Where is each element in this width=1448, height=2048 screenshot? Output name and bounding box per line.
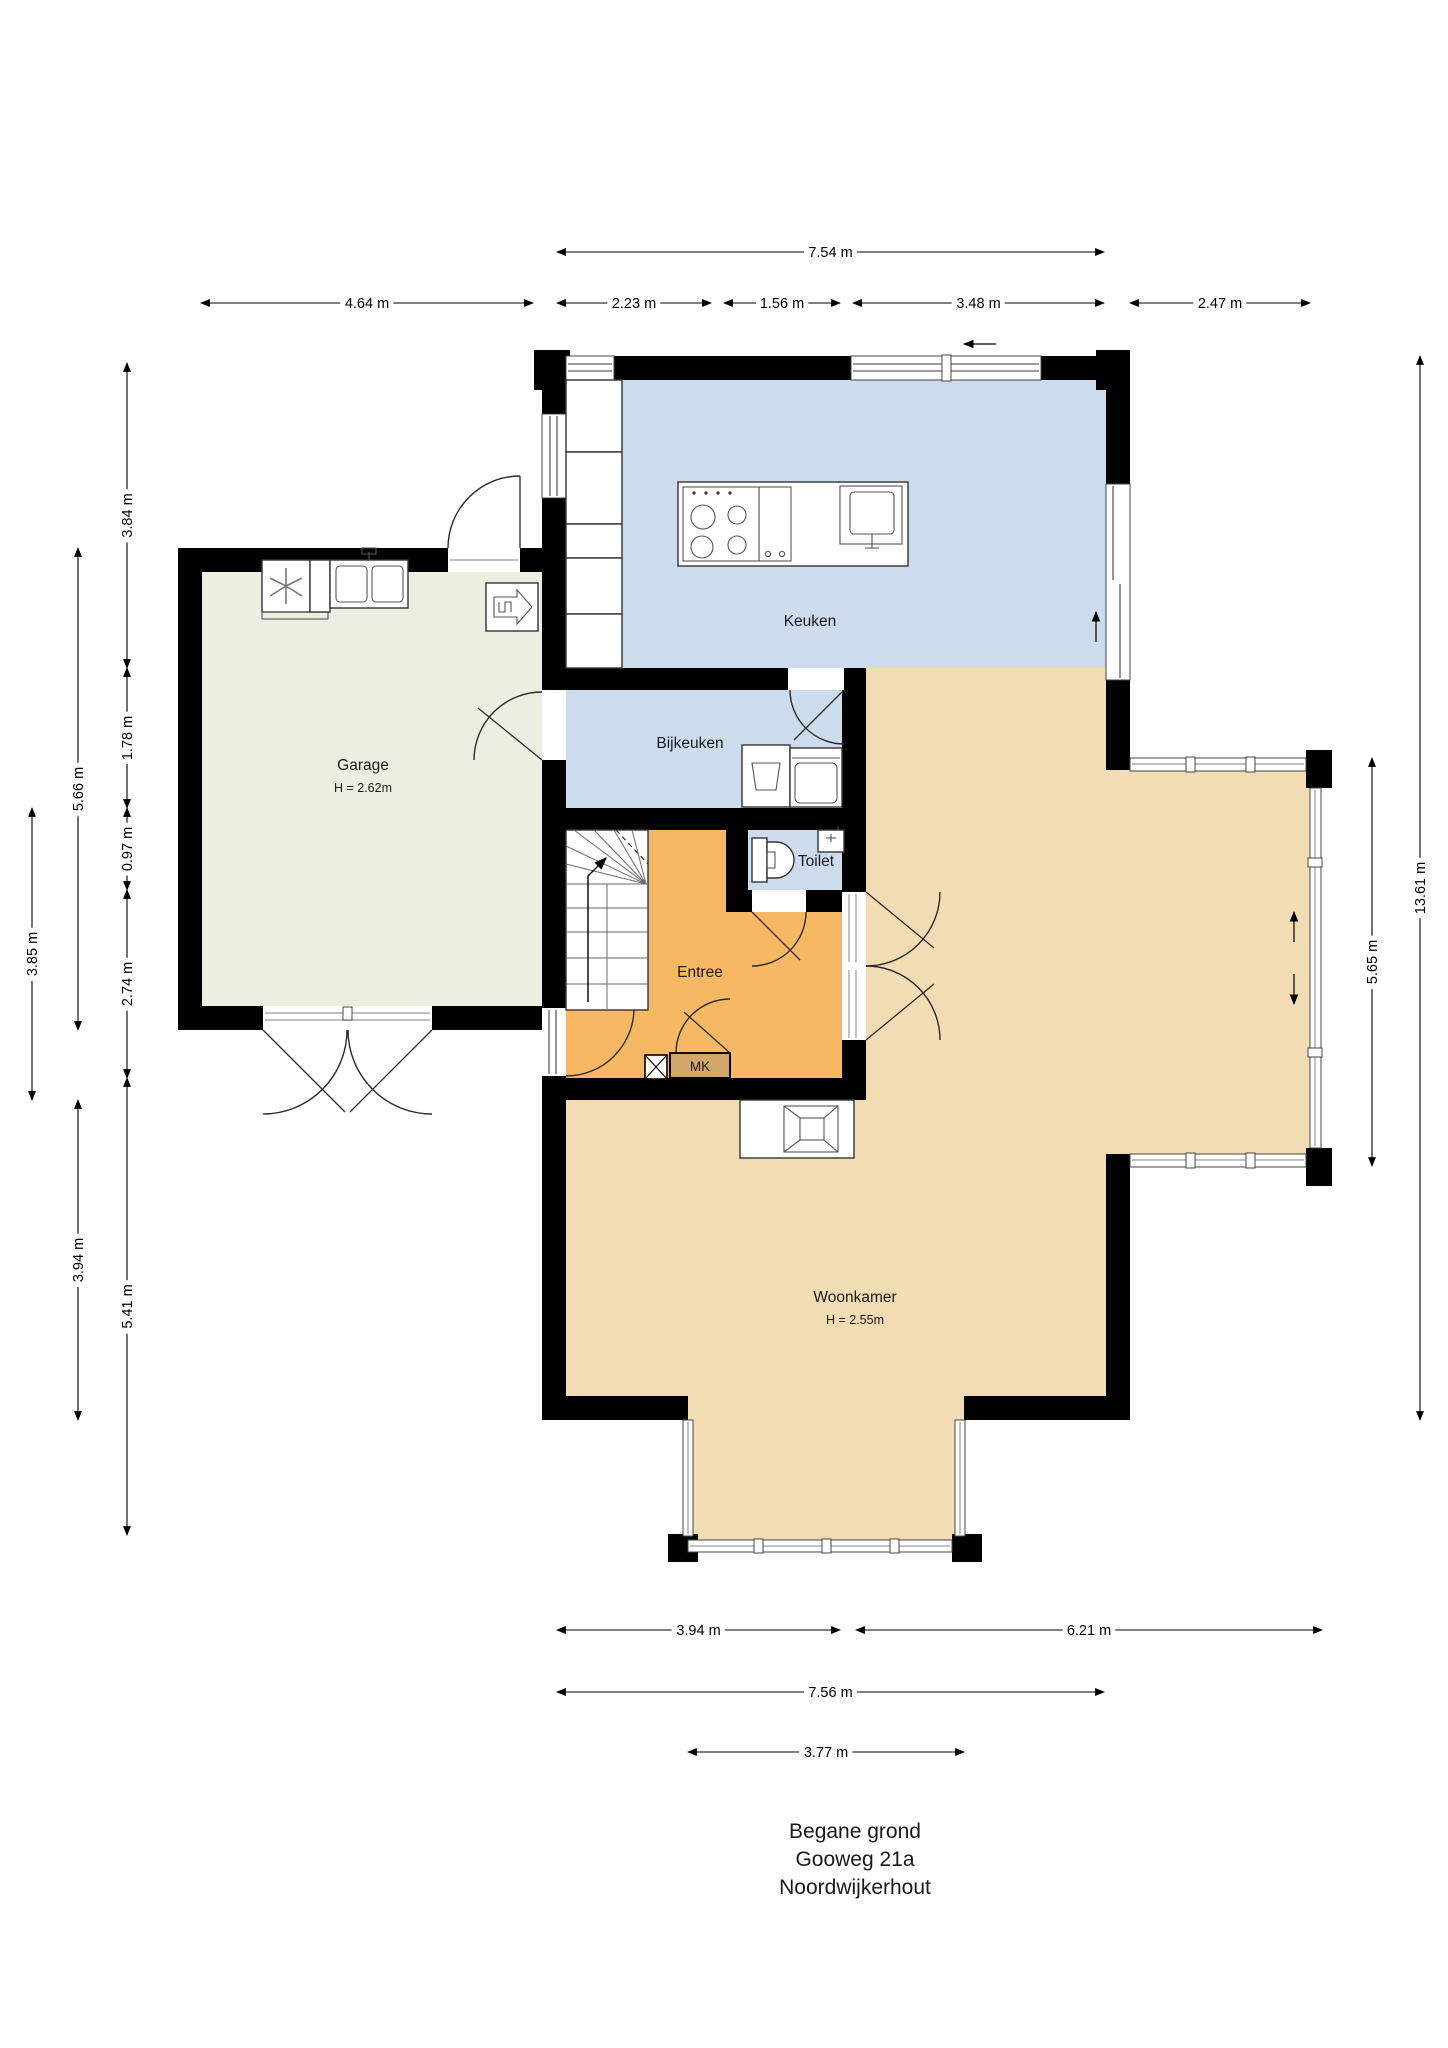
woonkamer-double-door-gap <box>842 892 866 1040</box>
utility-sink <box>742 745 790 807</box>
toilet-sink-icon <box>818 826 844 852</box>
keuken-top-window-large <box>851 355 1041 381</box>
toilet-door-gap <box>752 890 806 912</box>
dimension: 3.94 m <box>71 1100 87 1420</box>
garage-door-threshold <box>263 1006 432 1030</box>
dimension-label: 3.94 m <box>676 1623 720 1639</box>
dimension-label: 7.56 m <box>808 1685 852 1701</box>
toilet-label: Toilet <box>798 853 835 870</box>
dimension-label: 1.56 m <box>760 296 804 312</box>
floor-plan-svg: MK Keuken Bijkeuken Garage H = 2.62m Toi… <box>0 0 1448 2048</box>
dimension-label: 3.94 m <box>71 1238 87 1282</box>
title-floor: Begane grond <box>789 1820 921 1843</box>
dimension: 0.97 m <box>120 808 136 890</box>
dimension: 6.21 m <box>856 1623 1322 1639</box>
keuken-top-window-small <box>566 356 614 380</box>
dimension: 5.65 m <box>1365 758 1381 1166</box>
dimension: 5.66 m <box>71 548 87 1030</box>
dimension-label: 2.23 m <box>612 296 656 312</box>
dimension: 3.94 m <box>557 1623 840 1639</box>
dimension-label: 3.77 m <box>804 1745 848 1761</box>
washer-dryer <box>790 748 842 807</box>
dimension-label: 1.78 m <box>120 716 136 760</box>
dimension: 2.47 m <box>1130 296 1310 312</box>
staircase <box>566 830 648 1010</box>
woonkamer-label: Woonkamer <box>813 1289 896 1306</box>
dimension: 3.77 m <box>688 1745 964 1761</box>
garage-ceiling-label: H = 2.62m <box>334 781 392 795</box>
title-address: Gooweg 21a <box>795 1848 914 1871</box>
dimension-label: 3.48 m <box>956 296 1000 312</box>
dimension-label: 5.65 m <box>1365 940 1381 984</box>
entree-label: Entree <box>677 964 723 981</box>
dimension-label: 13.61 m <box>1413 862 1429 914</box>
boiler-arrow-icon <box>486 583 538 631</box>
dimension-label: 2.74 m <box>120 962 136 1006</box>
dimension-label: 3.84 m <box>120 493 136 537</box>
dimension: 3.85 m <box>25 808 41 1100</box>
dimension: 7.54 m <box>557 245 1104 261</box>
kitchen-island <box>678 482 908 566</box>
garage-label: Garage <box>337 757 389 774</box>
dimension-label: 6.21 m <box>1067 1623 1111 1639</box>
keuken-left-window <box>542 414 566 498</box>
dimension: 2.23 m <box>557 296 711 312</box>
dimension: 3.84 m <box>120 363 136 668</box>
dimension: 4.64 m <box>201 296 533 312</box>
kitchen-cabinets <box>566 380 622 668</box>
meterkast: MK <box>645 1053 730 1079</box>
garage-double-door-leaf-right <box>350 1030 432 1112</box>
woonkamer-ceiling-label: H = 2.55m <box>826 1313 884 1327</box>
dimension: 2.74 m <box>120 890 136 1078</box>
dimension-label: 4.64 m <box>345 296 389 312</box>
garage-house-door-gap <box>542 690 566 760</box>
garage-back-door-arc <box>448 476 520 548</box>
floorplan-page: MK Keuken Bijkeuken Garage H = 2.62m Toi… <box>0 0 1448 2048</box>
garage-double-door-leaf-left <box>263 1030 345 1112</box>
fireplace <box>740 1100 854 1158</box>
dimension-label: 5.66 m <box>71 767 87 811</box>
bijkeuken-appliances <box>742 745 842 807</box>
dimension: 1.56 m <box>724 296 840 312</box>
title-city: Noordwijkerhout <box>779 1876 931 1899</box>
dimension-label: 0.97 m <box>120 827 136 871</box>
dimension: 1.78 m <box>120 668 136 808</box>
dimension-label: 7.54 m <box>808 245 852 261</box>
front-door <box>542 1008 566 1076</box>
dimension-label: 3.85 m <box>25 932 41 976</box>
dimension-label: 5.41 m <box>120 1284 136 1328</box>
meterkast-label: MK <box>690 1059 710 1074</box>
bijkeuken-label: Bijkeuken <box>656 735 723 752</box>
keuken-label: Keuken <box>784 613 837 630</box>
dimension: 13.61 m <box>1413 356 1429 1420</box>
dimension: 3.48 m <box>853 296 1104 312</box>
dimension: 5.41 m <box>120 1078 136 1535</box>
garage-counter <box>310 560 330 612</box>
bijkeuken-door-gap <box>788 668 844 690</box>
title-block: Begane grond Gooweg 21a Noordwijkerhout <box>779 1820 931 1899</box>
dimension: 7.56 m <box>557 1685 1104 1701</box>
dimension-label: 2.47 m <box>1198 296 1242 312</box>
